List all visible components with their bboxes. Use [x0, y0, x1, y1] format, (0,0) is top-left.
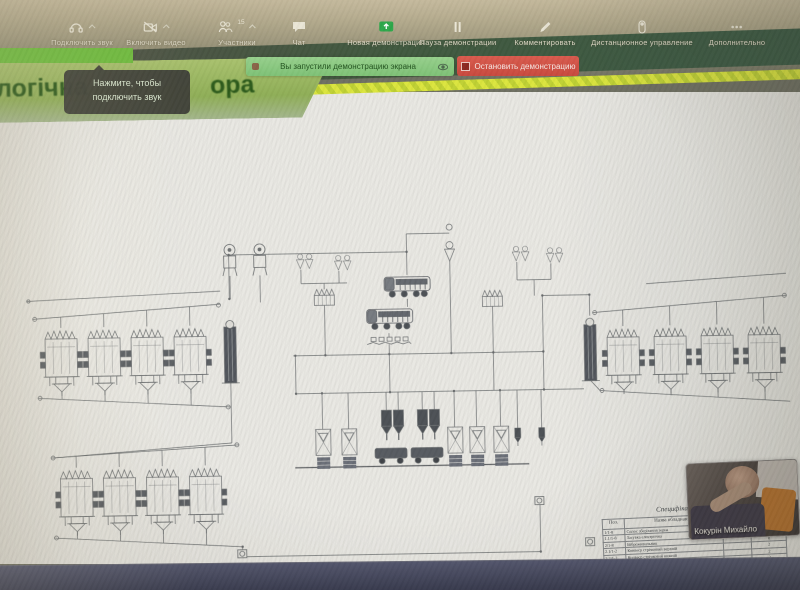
pause-icon	[450, 19, 466, 35]
more-dots-icon	[729, 19, 745, 35]
tooltip-line2: подключить звук	[64, 91, 190, 105]
chevron-up-icon[interactable]	[162, 24, 170, 29]
remote-control-button[interactable]: Дистанционное управление	[591, 18, 693, 47]
participants-button[interactable]: 15 Участники	[217, 18, 256, 47]
annotate-button[interactable]: Комментировать	[514, 18, 575, 47]
join-audio-tooltip: Нажмите, чтобы подключить звук	[64, 70, 190, 114]
sharing-banner: Вы запустили демонстрацию экрана	[246, 57, 454, 76]
participants-count-badge: 15	[237, 19, 244, 26]
chat-icon	[291, 19, 307, 35]
join-audio-button[interactable]: Подключить звук	[51, 18, 113, 47]
participants-icon	[217, 19, 233, 35]
stop-square-icon	[461, 62, 470, 71]
more-button[interactable]: Дополнительно	[709, 18, 766, 47]
shared-screen-page: Специфікація обладнання Поз. Назва облад…	[0, 92, 800, 564]
start-video-button[interactable]: Включить видео	[126, 18, 185, 47]
start-video-label: Включить видео	[126, 38, 185, 47]
tooltip-line1: Нажмите, чтобы	[64, 77, 190, 91]
chat-label: Чат	[291, 38, 307, 47]
sharing-banner-text: Вы запустили демонстрацию экрана	[259, 62, 437, 71]
join-audio-label: Подключить звук	[51, 38, 113, 47]
participant-video-thumbnail[interactable]: Кокурін Михайло	[685, 459, 800, 541]
more-label: Дополнительно	[709, 38, 766, 47]
participants-label: Участники	[217, 38, 256, 47]
chevron-up-icon[interactable]	[88, 24, 96, 29]
screen-photo: Специфікація обладнання Поз. Назва облад…	[0, 0, 800, 590]
camera-off-icon	[142, 19, 158, 35]
annotate-label: Комментировать	[514, 38, 575, 47]
pause-share-label: Пауза демонстрации	[420, 38, 497, 47]
pause-share-button[interactable]: Пауза демонстрации	[420, 18, 497, 47]
chat-button[interactable]: Чат	[291, 18, 307, 47]
headset-icon	[68, 19, 84, 35]
zoom-toolbar: Подключить звук Включить видео 15 Участн…	[0, 14, 800, 54]
page-content: Специфікація обладнання Поз. Назва облад…	[0, 85, 800, 571]
remote-control-label: Дистанционное управление	[591, 38, 693, 47]
broadcast-icon	[252, 63, 259, 70]
stop-share-label: Остановить демонстрацию	[475, 62, 576, 71]
remote-control-icon	[634, 19, 650, 35]
new-share-label: Новая демонстрация	[347, 38, 425, 47]
eye-icon[interactable]	[437, 62, 449, 72]
share-screen-icon	[378, 19, 394, 35]
stop-share-button[interactable]: Остановить демонстрацию	[457, 56, 579, 76]
new-share-button[interactable]: Новая демонстрация	[347, 18, 425, 47]
chevron-up-icon[interactable]	[249, 24, 257, 29]
pencil-icon	[537, 19, 553, 35]
